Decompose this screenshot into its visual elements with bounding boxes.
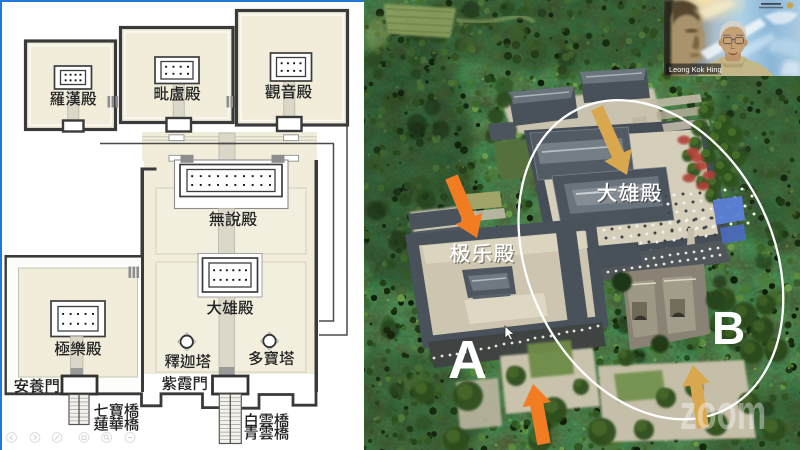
svg-text:Leong Kok Hing: Leong Kok Hing: [669, 65, 722, 74]
